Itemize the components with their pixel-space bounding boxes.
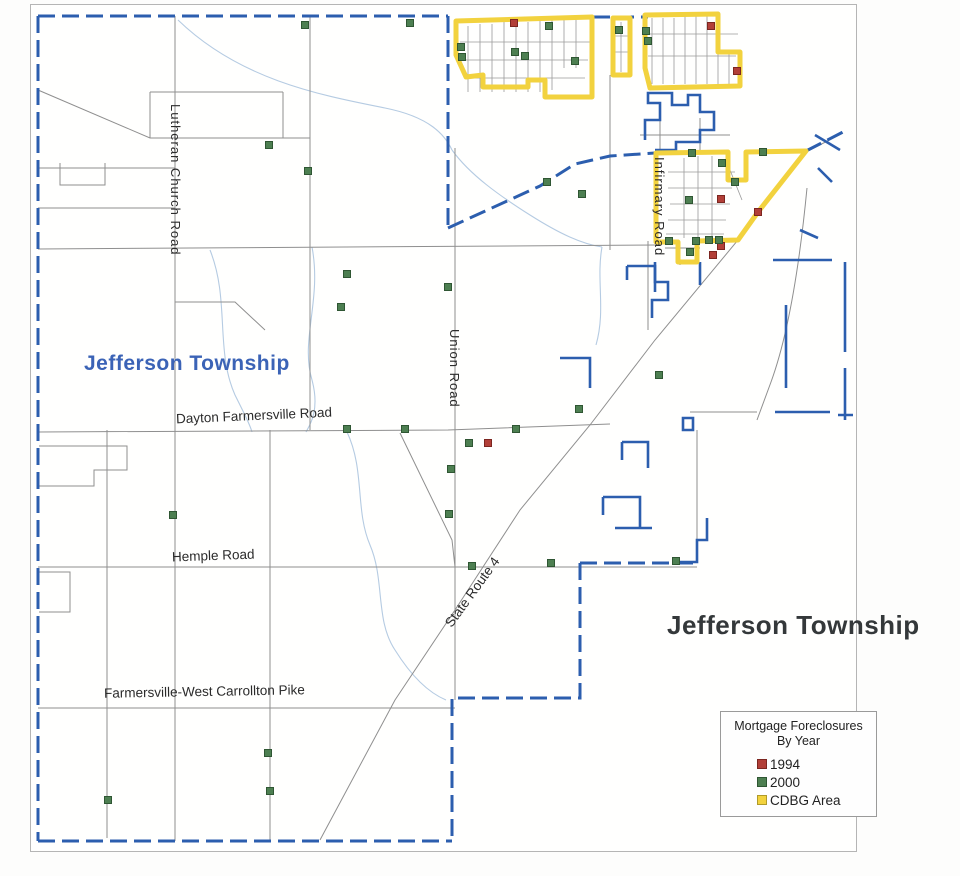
foreclosure-marker-2000 — [687, 249, 694, 256]
foreclosure-marker-2000 — [105, 797, 112, 804]
foreclosure-marker-2000 — [344, 271, 351, 278]
legend-swatch-2000 — [757, 777, 767, 787]
road-label-hemple: Hemple Road — [172, 547, 255, 565]
foreclosure-marker-2000 — [302, 22, 309, 29]
legend-label-2000: 2000 — [770, 775, 800, 790]
foreclosure-marker-2000 — [686, 197, 693, 204]
township-label-blue: Jefferson Township — [84, 352, 290, 376]
legend-title-line1: Mortgage Foreclosures — [721, 719, 876, 734]
foreclosure-marker-1994 — [485, 440, 492, 447]
road-label-infirmary: Infirmary Road — [652, 157, 667, 256]
foreclosure-marker-2000 — [760, 149, 767, 156]
foreclosure-marker-2000 — [459, 54, 466, 61]
foreclosure-marker-2000 — [716, 237, 723, 244]
map-page: Lutheran Church Road Union Road Infirmar… — [0, 0, 960, 876]
foreclosure-marker-2000 — [522, 53, 529, 60]
foreclosure-marker-2000 — [643, 28, 650, 35]
foreclosure-marker-2000 — [576, 406, 583, 413]
legend: Mortgage Foreclosures By Year 1994 2000 … — [720, 711, 877, 817]
foreclosure-marker-2000 — [512, 49, 519, 56]
foreclosure-marker-2000 — [458, 44, 465, 51]
foreclosure-marker-2000 — [656, 372, 663, 379]
township-label-black: Jefferson Township — [667, 610, 920, 641]
legend-label-cdbg: CDBG Area — [770, 793, 841, 808]
foreclosure-marker-2000 — [266, 142, 273, 149]
legend-title-line2: By Year — [721, 734, 876, 749]
foreclosure-marker-2000 — [513, 426, 520, 433]
foreclosure-marker-2000 — [546, 23, 553, 30]
legend-item-2000: 2000 — [757, 773, 876, 791]
foreclosure-marker-2000 — [402, 426, 409, 433]
foreclosure-marker-2000 — [170, 512, 177, 519]
foreclosure-marker-2000 — [645, 38, 652, 45]
legend-item-1994: 1994 — [757, 755, 876, 773]
foreclosure-marker-1994 — [718, 196, 725, 203]
foreclosure-marker-2000 — [448, 466, 455, 473]
foreclosure-marker-2000 — [407, 20, 414, 27]
foreclosure-marker-1994 — [708, 23, 715, 30]
legend-item-cdbg: CDBG Area — [757, 791, 876, 809]
foreclosure-marker-2000 — [305, 168, 312, 175]
foreclosure-marker-1994 — [755, 209, 762, 216]
legend-swatch-1994 — [757, 759, 767, 769]
foreclosure-marker-2000 — [265, 750, 272, 757]
foreclosure-marker-2000 — [732, 179, 739, 186]
foreclosure-marker-2000 — [469, 563, 476, 570]
foreclosure-marker-2000 — [579, 191, 586, 198]
foreclosure-marker-2000 — [693, 238, 700, 245]
foreclosure-marker-2000 — [673, 558, 680, 565]
foreclosure-marker-1994 — [734, 68, 741, 75]
foreclosure-marker-2000 — [719, 160, 726, 167]
foreclosure-marker-2000 — [544, 179, 551, 186]
foreclosure-marker-2000 — [267, 788, 274, 795]
foreclosure-marker-2000 — [338, 304, 345, 311]
foreclosure-marker-1994 — [511, 20, 518, 27]
legend-label-1994: 1994 — [770, 757, 800, 772]
foreclosure-marker-2000 — [572, 58, 579, 65]
foreclosure-marker-2000 — [344, 426, 351, 433]
foreclosure-marker-2000 — [445, 284, 452, 291]
foreclosure-marker-2000 — [548, 560, 555, 567]
foreclosure-marker-1994 — [710, 252, 717, 259]
road-label-lutheran-church: Lutheran Church Road — [168, 104, 183, 256]
foreclosure-marker-2000 — [446, 511, 453, 518]
legend-swatch-cdbg — [757, 795, 767, 805]
foreclosure-marker-2000 — [689, 150, 696, 157]
foreclosure-marker-2000 — [616, 27, 623, 34]
foreclosure-marker-2000 — [466, 440, 473, 447]
road-label-union: Union Road — [447, 329, 462, 408]
foreclosure-marker-2000 — [706, 237, 713, 244]
